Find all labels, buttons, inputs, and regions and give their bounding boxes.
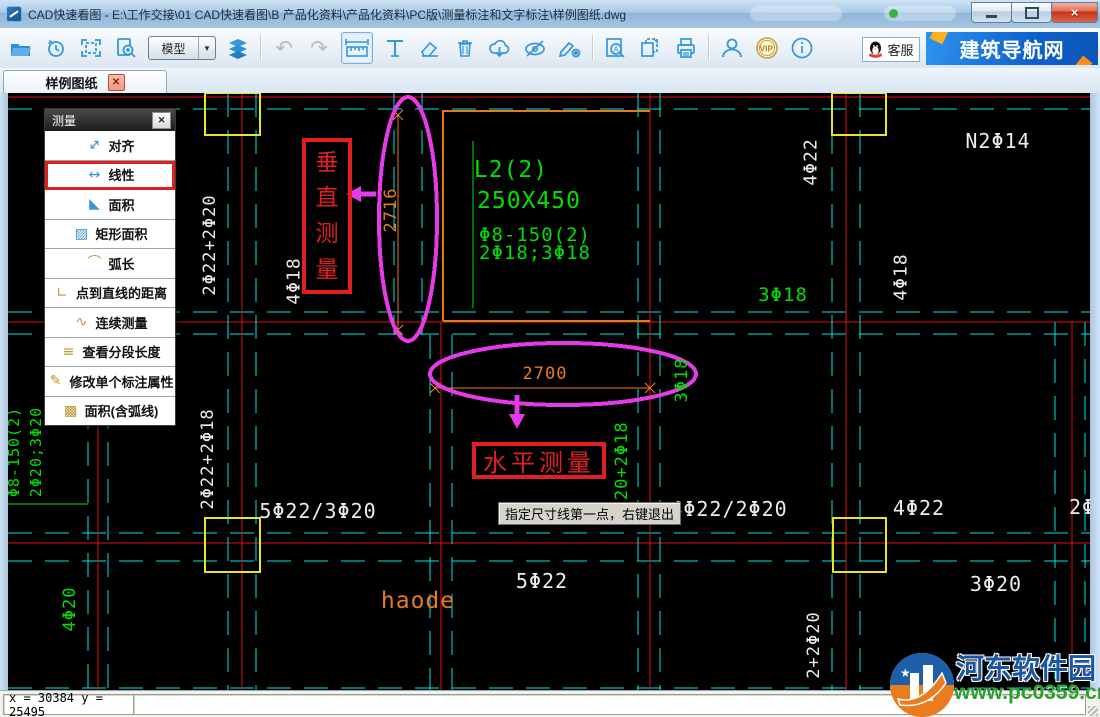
edit-dim-attr-icon: ✎ xyxy=(46,374,64,388)
area-arc-icon: ▩ xyxy=(62,404,80,418)
linear-dim-icon: ↔ xyxy=(85,168,103,182)
copy-page-button[interactable] xyxy=(638,33,664,63)
fit-extents-button[interactable] xyxy=(78,33,104,63)
measure-panel-item-label: 面积(含弧线) xyxy=(85,401,159,420)
measure-panel-item-label: 面积 xyxy=(108,195,134,214)
cad-label: L2(2) xyxy=(474,157,548,183)
watermark-chip xyxy=(750,6,842,21)
print-icon xyxy=(674,37,698,59)
measure-panel-item-label: 修改单个标注属性 xyxy=(69,372,173,391)
app-icon xyxy=(6,6,22,22)
status-message-field xyxy=(133,694,1086,715)
vip-button[interactable]: VIP xyxy=(754,33,780,63)
history-icon xyxy=(44,37,68,59)
undo-icon: ↶ xyxy=(275,38,293,59)
open-file-button[interactable] xyxy=(8,33,34,63)
find-text-icon: A xyxy=(604,37,628,59)
delete-button[interactable] xyxy=(452,33,478,63)
layout-selector-value: 模型 xyxy=(149,40,198,57)
cloud-download-icon xyxy=(487,37,513,59)
measure-panel-item[interactable]: ↔对齐 xyxy=(45,131,175,161)
measure-panel-item-label: 矩形面积 xyxy=(95,224,147,243)
title-bar: CAD快速看图 - E:\工作交接\01 CAD快速看图\B 产品化资料\产品化… xyxy=(0,0,1100,29)
hide-layer-button[interactable] xyxy=(522,33,548,63)
text-annotate-button[interactable] xyxy=(382,33,408,63)
layout-selector[interactable]: 模型 ▼ xyxy=(148,36,216,60)
measure-panel-item-label: 查看分段长度 xyxy=(82,342,160,361)
measure-panel-item[interactable]: ⌒弧长 xyxy=(45,249,175,279)
maximize-icon xyxy=(1025,7,1039,19)
svg-text:A: A xyxy=(614,45,620,54)
status-dot xyxy=(889,9,898,18)
customer-service-label: 客服 xyxy=(887,40,913,59)
cad-label: 2Φ22+2Φ18 xyxy=(198,408,218,509)
vertical-measure-callout-text: 垂直测量 xyxy=(315,145,340,288)
measure-panel-item[interactable]: ∿连续测量 xyxy=(45,308,175,338)
cad-label: 4Φ22 xyxy=(893,496,945,520)
arc-length-icon: ⌒ xyxy=(85,256,103,270)
cad-label: 4Φ22 xyxy=(801,138,822,185)
window-title: CAD快速看图 - E:\工作交接\01 CAD快速看图\B 产品化资料\产品化… xyxy=(28,6,626,23)
customer-service-button[interactable]: 客服 xyxy=(862,37,920,62)
cad-label: 4Φ20 xyxy=(60,587,80,632)
about-button[interactable] xyxy=(789,33,815,63)
align-dim-icon: ↔ xyxy=(85,138,103,152)
minimize-button[interactable] xyxy=(971,2,1012,23)
cad-label: 3Φ18 xyxy=(758,284,808,306)
copy-page-icon xyxy=(639,37,663,59)
tab-close-icon[interactable]: ✕ xyxy=(108,74,125,91)
close-icon: × xyxy=(1071,5,1079,20)
cad-label: 2716 xyxy=(381,188,401,233)
print-button[interactable] xyxy=(673,33,699,63)
drawing-canvas[interactable]: L2(2)250X450Φ8-150(2)2Φ18;3Φ1827162700N2… xyxy=(8,93,1090,690)
delete-icon xyxy=(454,37,476,59)
history-button[interactable] xyxy=(43,33,69,63)
cad-label: 5Φ22 xyxy=(516,569,568,593)
redo-icon: ↷ xyxy=(310,38,328,59)
close-icon[interactable]: ✕ xyxy=(152,112,171,129)
minimize-icon xyxy=(986,15,997,18)
measure-panel-item-label: 点到直线的距离 xyxy=(76,283,167,302)
eraser-button[interactable] xyxy=(417,33,443,63)
undo-button[interactable]: ↶ xyxy=(271,33,297,63)
eraser-icon xyxy=(418,37,442,59)
measure-panel-item[interactable]: ▩面积(含弧线) xyxy=(45,397,175,426)
measure-panel-item[interactable]: ∟点到直线的距离 xyxy=(45,279,175,309)
measure-panel-item[interactable]: ≡查看分段长度 xyxy=(45,338,175,368)
point-to-line-icon: ∟ xyxy=(53,286,71,300)
find-text-button[interactable]: A xyxy=(603,33,629,63)
continuous-measure-icon: ∿ xyxy=(72,315,90,329)
nav-site-banner[interactable]: 建筑导航网 xyxy=(926,32,1098,65)
window-frame xyxy=(1090,93,1100,690)
cad-label: 4Φ22/2Φ20 xyxy=(670,497,787,521)
vip-icon: VIP xyxy=(754,36,780,60)
layers-icon xyxy=(226,37,250,59)
redo-button[interactable]: ↷ xyxy=(306,33,332,63)
about-icon xyxy=(790,36,814,60)
horizontal-measure-callout: 水平测量 xyxy=(472,442,606,479)
svg-text:VIP: VIP xyxy=(760,44,774,54)
horizontal-measure-callout-text: 水平测量 xyxy=(483,443,595,478)
measure-panel-item[interactable]: ◣面积 xyxy=(45,190,175,220)
hide-layer-icon xyxy=(522,37,548,59)
measure-panel-title: 测量 xyxy=(52,112,152,129)
page-zoom-icon xyxy=(114,37,138,59)
measure-panel-titlebar[interactable]: 测量 ✕ xyxy=(45,109,175,131)
cad-label: 2Φ xyxy=(1069,495,1090,519)
measure-panel-item-label: 连续测量 xyxy=(95,313,147,332)
cloud-download-button[interactable] xyxy=(487,33,513,63)
fit-extents-icon xyxy=(79,37,103,59)
tab-label: 样例图纸 xyxy=(45,73,97,92)
qq-penguin-icon xyxy=(868,41,883,58)
vertical-measure-callout: 垂直测量 xyxy=(302,138,352,294)
cad-label: 3Φ20 xyxy=(970,572,1022,596)
measure-panel-item-label: 弧长 xyxy=(108,254,134,273)
cursor-coordinates: x = 30384 y = 25495 xyxy=(3,694,137,715)
layers-button[interactable] xyxy=(225,33,251,63)
measure-button[interactable] xyxy=(341,32,373,64)
rect-area-icon: ▨ xyxy=(72,227,90,241)
cad-label: haode xyxy=(381,588,455,614)
cursor-tooltip: 指定尺寸线第一点，右键退出 xyxy=(498,502,681,525)
cad-label: 3Φ18 xyxy=(672,358,692,403)
area-icon: ◣ xyxy=(85,197,103,211)
cad-label: 2+2Φ20 xyxy=(804,611,824,678)
cad-label: 5Φ22/3Φ20 xyxy=(259,499,376,523)
window-frame xyxy=(0,93,8,690)
text-annotate-icon xyxy=(383,37,407,59)
measure-panel-item[interactable]: ↔线性 xyxy=(45,161,175,191)
open-file-icon xyxy=(9,37,33,59)
user-button[interactable] xyxy=(719,33,745,63)
cad-label: 2Φ18;3Φ18 xyxy=(479,242,591,264)
cad-label: 2700 xyxy=(523,364,568,384)
cad-label: 4Φ18 xyxy=(891,253,912,300)
tab-bar: 样例图纸 ✕ xyxy=(0,68,1100,94)
app-window: CAD快速看图 - E:\工作交接\01 CAD快速看图\B 产品化资料\产品化… xyxy=(0,0,1100,717)
cad-label: Φ8-150(2) xyxy=(8,407,23,497)
chevron-down-icon: ▼ xyxy=(198,37,215,59)
annotation-settings-button[interactable] xyxy=(557,33,583,63)
segment-length-icon: ≡ xyxy=(59,345,77,359)
cad-label: 250X450 xyxy=(477,188,581,214)
maximize-button[interactable] xyxy=(1011,2,1052,23)
measure-icon xyxy=(344,36,370,60)
nav-site-banner-label: 建筑导航网 xyxy=(960,34,1065,63)
user-icon xyxy=(720,37,744,59)
toolbar: 模型 ▼ ↶ ↷ xyxy=(0,28,1100,69)
close-button[interactable]: × xyxy=(1051,2,1098,23)
resize-grip[interactable] xyxy=(1088,706,1098,716)
measure-panel-item[interactable]: ▨矩形面积 xyxy=(45,220,175,250)
measure-panel-item[interactable]: ✎修改单个标注属性 xyxy=(45,367,175,397)
cad-label: 2Φ20;3Φ20 xyxy=(27,407,45,497)
status-bar: x = 30384 y = 25495 xyxy=(0,690,1100,717)
annotation-settings-icon xyxy=(557,37,583,59)
measure-panel: 测量 ✕ ↔对齐↔线性◣面积▨矩形面积⌒弧长∟点到直线的距离∿连续测量≡查看分段… xyxy=(44,108,176,426)
measure-panel-item-label: 对齐 xyxy=(108,136,134,155)
measure-panel-item-label: 线性 xyxy=(108,165,134,184)
cad-label: N2Φ14 xyxy=(965,129,1030,153)
cad-label: 2Φ22+2Φ20 xyxy=(200,194,220,295)
page-zoom-button[interactable] xyxy=(113,33,139,63)
tab-sample-drawing[interactable]: 样例图纸 ✕ xyxy=(3,70,167,94)
